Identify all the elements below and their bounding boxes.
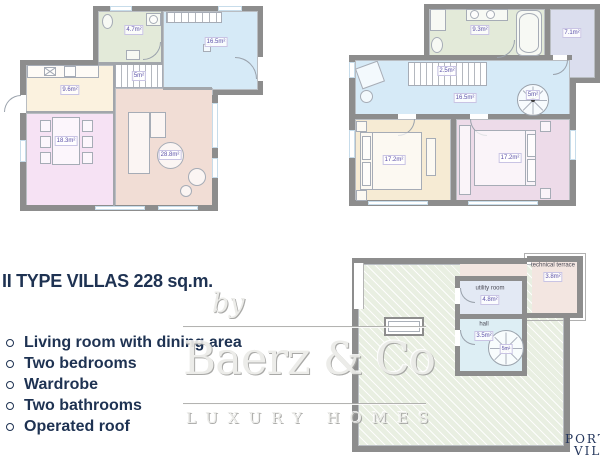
wall [352, 258, 527, 264]
watermark-rule-top [183, 326, 426, 328]
area-label: 17.2m² [499, 153, 522, 163]
wall [460, 314, 522, 319]
area-label: 18.3m² [55, 136, 78, 146]
wall [527, 256, 583, 262]
area-label: 5m² [526, 90, 540, 100]
area-label: 9.6m² [60, 85, 79, 95]
wall-niche [354, 263, 364, 309]
area-label: 17.2m² [383, 155, 406, 165]
watermark-tagline: LUXURY HOMES [186, 409, 439, 427]
area-label: 28.8m² [159, 150, 182, 160]
wall [455, 276, 527, 281]
area-label: 3.5m² [474, 331, 493, 341]
bullet-icon [6, 402, 14, 410]
bullet-icon [6, 339, 14, 347]
area-label: 5m² [500, 344, 513, 354]
feature-text: Two bedrooms [24, 355, 137, 373]
room-name-label: hall [479, 322, 488, 329]
wall [352, 446, 570, 452]
area-label: 4.8m² [480, 295, 499, 305]
area-label: 4.7m² [124, 25, 143, 35]
feature-text: Operated roof [24, 418, 130, 436]
watermark-rule-bottom [183, 403, 426, 405]
area-label: 16.5m² [454, 93, 477, 103]
area-label: 2.5m² [437, 66, 456, 76]
corner-logo-line2: VIL [574, 445, 600, 457]
feature-text: Two bathrooms [24, 397, 142, 415]
bullet-icon [6, 381, 14, 389]
room-name-label: technical terrace [531, 263, 575, 270]
page-title: II TYPE VILLAS 228 sq.m. [2, 271, 213, 292]
villa-floorplan-sheet: { "title": "II TYPE VILLAS 228 sq.m.", "… [0, 0, 600, 465]
area-label: 5m² [132, 71, 146, 81]
wall [577, 256, 583, 318]
area-label: 7.1m² [562, 28, 581, 38]
bullet-icon [6, 360, 14, 368]
bullet-icon [6, 423, 14, 431]
watermark-brand: Baerz & Co [183, 332, 426, 385]
wall [455, 371, 527, 376]
wall [522, 276, 527, 376]
watermark-by: by [212, 288, 245, 319]
corner-brand-logo: PORT VIL [565, 433, 600, 457]
area-label: 3.8m² [543, 272, 562, 282]
room-name-label: utility room [475, 286, 504, 293]
area-label: 16.5m² [205, 37, 228, 47]
wall [527, 313, 570, 318]
feature-text: Wardrobe [24, 376, 98, 394]
room-technical-terrace [532, 262, 577, 313]
area-label: 9.3m² [470, 25, 489, 35]
technical-terrace-strip [460, 264, 527, 276]
